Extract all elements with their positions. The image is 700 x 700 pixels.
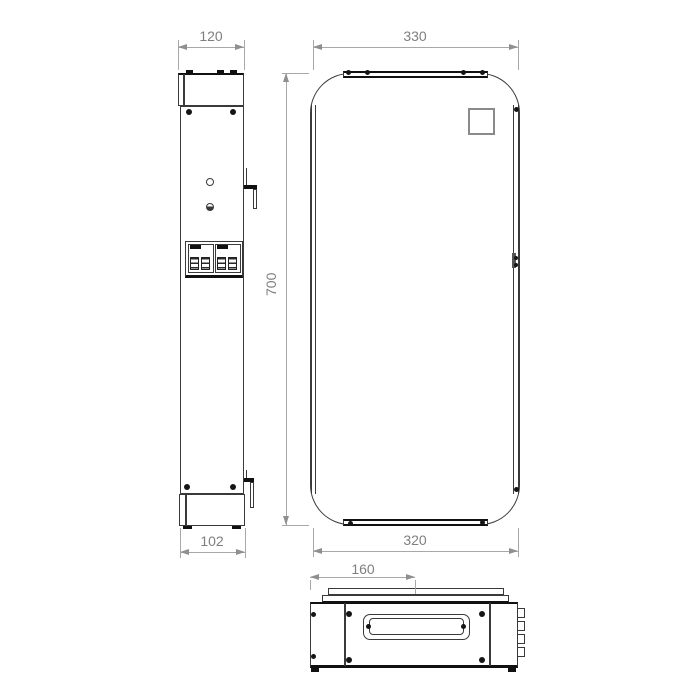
cap-screw-tab bbox=[230, 70, 237, 74]
cap-screw-tab bbox=[186, 70, 193, 74]
screw-dot bbox=[461, 624, 466, 629]
terminal-screw bbox=[201, 257, 210, 270]
mounting-bracket-top-pin bbox=[246, 168, 248, 186]
drawing-canvas: 120 330 700 102 320 160 bbox=[0, 0, 700, 700]
front-panel bbox=[310, 73, 520, 525]
terminal-screw bbox=[190, 257, 199, 270]
dimension-arrow bbox=[509, 44, 518, 50]
screw-dot bbox=[461, 70, 466, 75]
ext-line bbox=[244, 40, 245, 70]
door-edge-right bbox=[513, 105, 519, 494]
breaker-label-strip bbox=[190, 245, 201, 249]
dim-line bbox=[313, 551, 518, 552]
screw-dot bbox=[311, 654, 316, 659]
cable-gland bbox=[517, 647, 525, 658]
dim-line bbox=[286, 73, 287, 525]
terminal-screw bbox=[228, 257, 237, 270]
ext-line bbox=[282, 525, 309, 526]
screw-dot bbox=[230, 484, 236, 490]
dimension-arrow bbox=[406, 574, 415, 580]
dimension-arrow bbox=[236, 549, 245, 555]
screw-dot bbox=[230, 109, 236, 115]
dimension-arrow bbox=[283, 516, 289, 525]
screw-dot bbox=[186, 109, 192, 115]
lock-pin bbox=[514, 263, 518, 267]
dim-bottom-plate-width-label: 160 bbox=[333, 562, 393, 576]
cap-screw-tab bbox=[217, 70, 224, 74]
breaker-label-strip bbox=[217, 245, 228, 249]
cable-gland bbox=[517, 634, 525, 645]
screw-dot bbox=[348, 521, 353, 526]
door-edge-left bbox=[311, 105, 316, 494]
dimension-arrow bbox=[180, 549, 189, 555]
dimension-arrow bbox=[310, 574, 319, 580]
ext-line bbox=[310, 580, 311, 590]
screw-dot bbox=[346, 611, 352, 617]
foot bbox=[508, 668, 516, 672]
side-top-cap-inner-line bbox=[183, 74, 185, 105]
screw-dot bbox=[514, 487, 519, 492]
side-top-cap bbox=[178, 73, 244, 106]
foot bbox=[183, 526, 192, 530]
screw-dot bbox=[365, 70, 370, 75]
dim-height-label: 700 bbox=[264, 262, 278, 307]
dim-side-width-label: 120 bbox=[183, 29, 239, 43]
screw-dot bbox=[479, 611, 485, 617]
ext-line bbox=[518, 40, 519, 70]
ext-line bbox=[518, 528, 519, 557]
dim-front-bottom-width-label: 320 bbox=[385, 533, 445, 547]
dimension-arrow bbox=[313, 548, 322, 554]
screw-dot bbox=[479, 657, 485, 663]
screw-dot bbox=[346, 70, 351, 75]
bottom-cover-strip bbox=[343, 519, 488, 526]
dimension-arrow bbox=[235, 44, 244, 50]
mounting-bracket-top-arm bbox=[253, 189, 257, 209]
vent-hole bbox=[206, 178, 214, 186]
foot bbox=[311, 668, 319, 672]
terminal-screw bbox=[217, 257, 226, 270]
screw-dot bbox=[480, 520, 485, 525]
dimension-arrow bbox=[313, 44, 322, 50]
screw-dot bbox=[480, 70, 485, 75]
mounting-bracket-bottom-arm bbox=[250, 482, 254, 508]
ext-line bbox=[415, 580, 416, 594]
dimension-arrow bbox=[283, 73, 289, 82]
cable-gland bbox=[517, 621, 525, 632]
screw-dot bbox=[184, 484, 190, 490]
dimension-arrow bbox=[178, 44, 187, 50]
side-bottom-inner-line bbox=[185, 495, 187, 525]
dim-line bbox=[310, 577, 415, 578]
dim-line bbox=[313, 47, 518, 48]
foot bbox=[232, 526, 241, 530]
lock-pin bbox=[514, 256, 518, 260]
side-bottom-box bbox=[179, 494, 245, 526]
screw-dot bbox=[366, 624, 371, 629]
dimension-arrow bbox=[509, 548, 518, 554]
dim-front-width-label: 330 bbox=[385, 29, 445, 43]
dim-side-depth-label: 102 bbox=[182, 534, 242, 548]
vent-hole-screw bbox=[206, 203, 214, 211]
side-body bbox=[180, 106, 244, 494]
cable-gland bbox=[517, 608, 525, 619]
ext-line bbox=[245, 528, 246, 558]
screw-dot bbox=[346, 657, 352, 663]
logo-placeholder bbox=[468, 108, 495, 135]
panel-divider bbox=[489, 603, 491, 666]
cable-entry-cover bbox=[369, 618, 464, 635]
screw-dot bbox=[514, 107, 519, 112]
screw-dot bbox=[311, 612, 316, 617]
